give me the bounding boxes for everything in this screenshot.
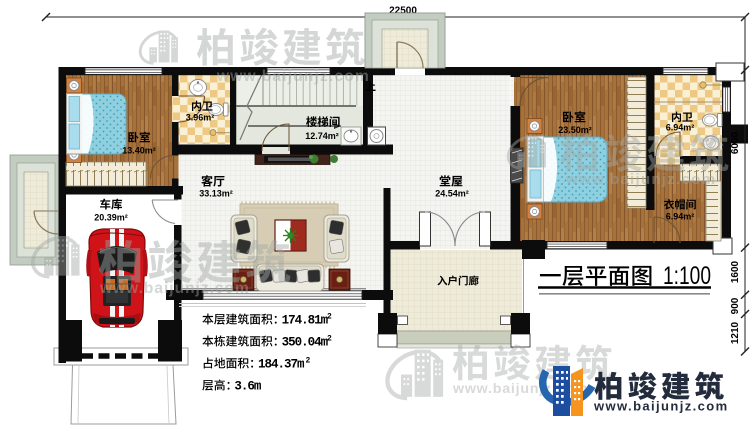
svg-text:3.96m²: 3.96m² [186,113,215,123]
svg-text:1:100: 1:100 [663,262,711,290]
svg-text:6.94m²: 6.94m² [666,212,695,222]
svg-text:www.baijunjz.com: www.baijunjz.com [593,399,729,414]
svg-text:www.baijunjz.com: www.baijunjz.com [216,68,370,85]
svg-text:2: 2 [327,313,332,322]
svg-text:20.39m²: 20.39m² [94,213,128,223]
svg-text:6000: 6000 [730,131,741,154]
svg-text:www.baijunjz.com: www.baijunjz.com [99,280,250,297]
svg-text:www.baijunjz.com: www.baijunjz.com [565,171,716,188]
svg-text:2: 2 [306,357,311,366]
svg-text:12.74m²: 12.74m² [305,131,339,141]
svg-text:6.94m²: 6.94m² [666,123,695,133]
svg-text:23.50m²: 23.50m² [558,125,592,135]
svg-text:184.37m: 184.37m [258,358,305,372]
svg-text:900: 900 [730,297,741,314]
svg-text:13.40m²: 13.40m² [122,146,156,156]
svg-text:33.13m²: 33.13m² [199,189,233,199]
svg-text:3.6m: 3.6m [234,380,262,394]
svg-text:2: 2 [327,335,332,344]
svg-text:174.81m: 174.81m [282,314,329,328]
svg-text:350.04m: 350.04m [282,336,329,350]
svg-text:24.54m²: 24.54m² [435,189,469,199]
svg-text:1600: 1600 [730,260,741,283]
svg-text:1210: 1210 [730,321,741,344]
